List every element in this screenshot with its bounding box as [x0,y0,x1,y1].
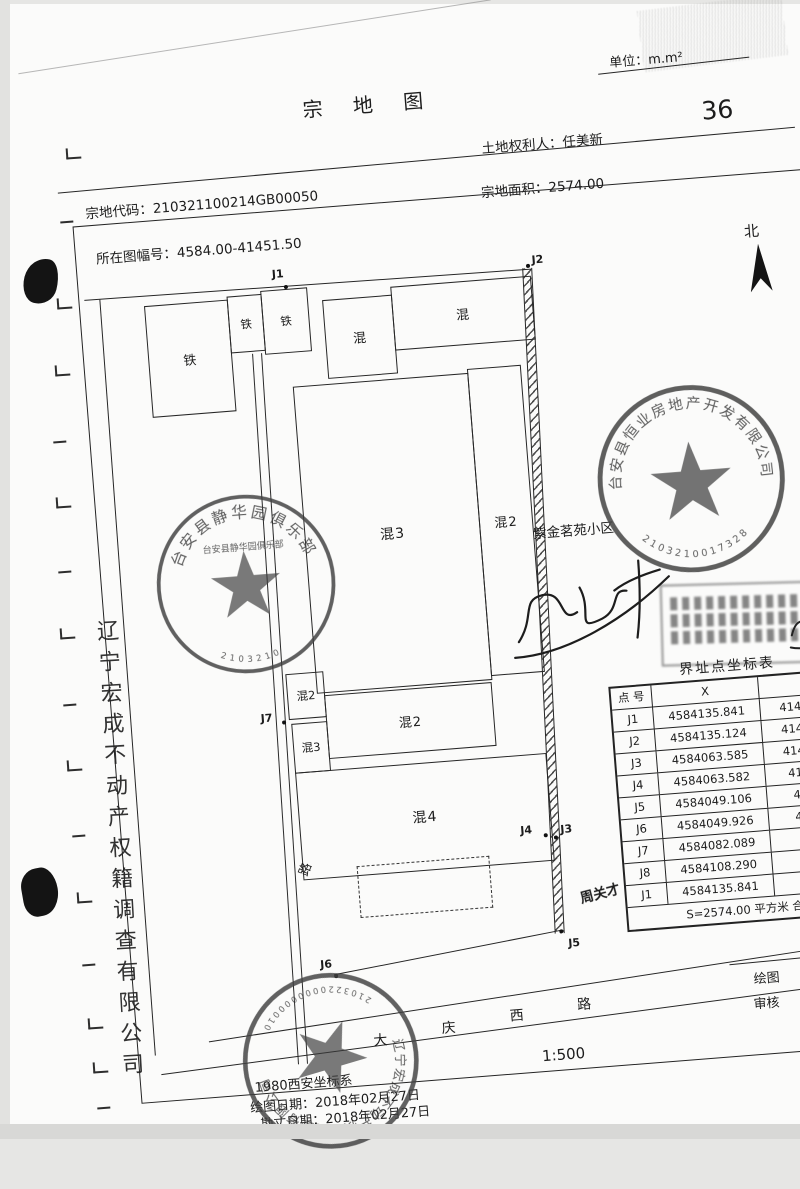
cell-point: J1 [626,883,668,907]
building-label: 混3 [379,522,405,544]
star-icon [209,548,283,619]
building: 铁 [260,287,312,354]
registration-mark [72,826,86,838]
drafter-label: 绘图 [753,966,780,987]
point-label: J4 [520,823,533,837]
building: 混3 [291,721,331,774]
road-name-char: 庆 [441,1017,457,1038]
scanned-parcel-map-page: { "scan": { "page_number": "36" }, "head… [0,0,800,1139]
sheet-number: 所在图幅号：4584.00-41451.50 [95,232,302,268]
north-arrow-icon [747,243,773,293]
illegible-stamp-row [670,594,800,610]
building: 混2 [324,682,497,759]
building-label: 混2 [494,510,519,531]
handwritten-name: 周关才 [578,877,622,907]
cell-point: J3 [616,751,658,775]
dashed-structure [357,856,494,918]
building-label: 混 [352,327,367,347]
surveyor-stamp: 辽宁宏成不动产权籍调查有限公司 2103220000000010 [215,945,446,1176]
cell-point: J8 [624,861,666,885]
registration-mark [58,562,72,574]
registration-mark [77,891,93,903]
registration-mark [82,955,96,967]
registration-mark [88,1017,104,1029]
page-title: 宗 地 图 [263,81,475,126]
handwritten-signature [496,534,689,693]
club-stamp: 台安县静华园俱乐部 台安县静华园俱乐部 2103210 [144,482,348,686]
registration-mark [60,627,76,639]
cell-point: J2 [614,729,656,753]
registration-mark [56,496,72,508]
point-label: J3 [560,822,573,836]
registration-mark [67,759,83,771]
coords-table: 点 号 X Y J14584135.84141451482.048 J24584… [608,665,800,932]
registration-mark [53,432,67,444]
cell-point: J1 [612,708,654,732]
road-name-char: 西 [509,1005,525,1026]
registration-mark [55,364,71,376]
registration-mark [57,297,73,309]
building-label: 混2 [398,710,423,731]
registration-mark [63,695,77,707]
building: 铁 [144,300,237,418]
building: 混 [390,276,536,351]
point-label: J7 [260,711,273,725]
registration-mark [97,1098,111,1110]
checker-label: 审核 [753,991,780,1012]
building: 混2 [285,671,326,720]
building-label: 铁 [240,315,253,332]
registration-mark [60,212,74,224]
building-label: 混3 [301,739,321,756]
building-label: 混2 [296,687,316,704]
building-label: 铁 [280,313,293,330]
scanner-edge-left [0,0,10,1139]
building: 铁 [226,294,265,354]
registration-mark [93,1061,109,1073]
building: 混 [322,295,398,379]
club-stamp-number: 2103210 [219,646,285,667]
point-label: J2 [531,253,544,267]
star-icon [287,1017,375,1103]
scanner-edge-bottom [0,1124,800,1139]
scale-label: 1:500 [541,1044,586,1065]
building-label: 铁 [183,349,198,369]
col-header: 点 号 [610,686,652,710]
page-number: 36 [700,94,734,125]
cell-point: J5 [619,795,661,819]
point-label: J1 [271,267,284,281]
illegible-stamp-row [671,628,800,644]
document: 单位：m.m² 宗 地 图 36 土地权利人：任美新 宗地代码：21032110… [20,0,800,1154]
registration-mark [66,147,82,159]
cell-point: J6 [621,817,663,841]
road-name-char: 路 [576,993,592,1014]
building-label: 混4 [412,806,438,828]
svg-text:2103210: 2103210 [219,646,285,667]
map-frame: 所在图幅号：4584.00-41451.50 北 铁 铁 铁 混 混 混3 混2… [73,168,800,1104]
cell-point: J7 [623,839,665,863]
building-label: 混 [455,303,470,323]
point-label: J5 [568,936,581,950]
north-label: 北 [743,220,760,242]
star-icon [648,438,734,521]
cell-point: J4 [617,773,659,797]
illegible-stamp-row [670,611,800,627]
